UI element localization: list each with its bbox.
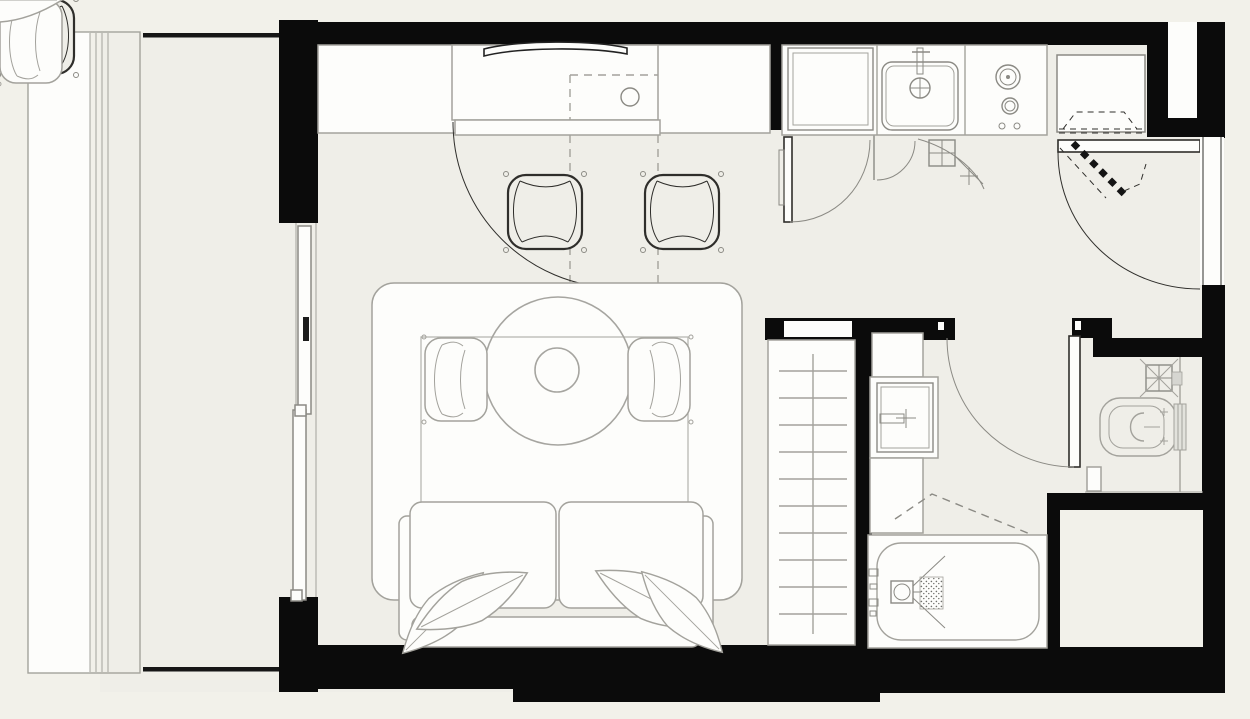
floor-plan-canvas	[0, 0, 1250, 719]
wall-stairs-top-notch	[784, 321, 852, 337]
slider-cap	[291, 590, 302, 601]
bathtub	[868, 535, 1047, 648]
desk-shelf	[455, 120, 660, 135]
slider-cap	[295, 405, 306, 416]
wall-pier-top-left	[279, 20, 318, 223]
slider-handle	[303, 317, 309, 341]
wall-pier-bottom-left	[279, 597, 318, 692]
balcony-deck	[28, 32, 90, 673]
wall-window-cap	[1200, 131, 1225, 138]
grid-box-accessory	[1172, 372, 1182, 385]
bathroom-door-leaf	[1069, 336, 1080, 467]
utility-door-leaf	[784, 137, 792, 222]
wall-wc-top	[1093, 338, 1203, 357]
desk-counter	[452, 45, 658, 120]
wall-connector-top	[143, 33, 283, 38]
kitchen-counter-right	[782, 45, 1047, 135]
stair-well	[768, 340, 855, 645]
entry-closet	[1057, 55, 1145, 132]
wall-wc-jamb-notch	[1075, 321, 1081, 330]
wall-top	[318, 22, 1168, 45]
bar-chair	[641, 172, 724, 253]
side-window	[1200, 137, 1224, 285]
wall-shaft-channel	[1168, 22, 1197, 118]
wall-bottom-step	[513, 645, 880, 702]
kitchen-fixtures	[782, 45, 1047, 135]
under-sink-cabinet	[870, 458, 923, 533]
drain-mat	[920, 577, 943, 609]
shaft-void-opening	[1060, 510, 1203, 647]
bar-chair	[504, 172, 587, 253]
wall-bathdoor-jamb-notch	[938, 322, 944, 330]
staircase	[768, 340, 855, 645]
wall-cross-right	[1147, 118, 1203, 137]
wall-pier-kitchen	[770, 22, 782, 130]
waste-bin	[1087, 467, 1101, 491]
cistern	[1174, 404, 1186, 450]
armchair	[422, 335, 487, 424]
armchair	[628, 335, 693, 424]
wall-connector-bottom	[143, 667, 283, 672]
vanity-upper	[872, 333, 923, 377]
slider-panel-lower	[293, 410, 306, 600]
wall-column-right-top	[1197, 22, 1225, 137]
